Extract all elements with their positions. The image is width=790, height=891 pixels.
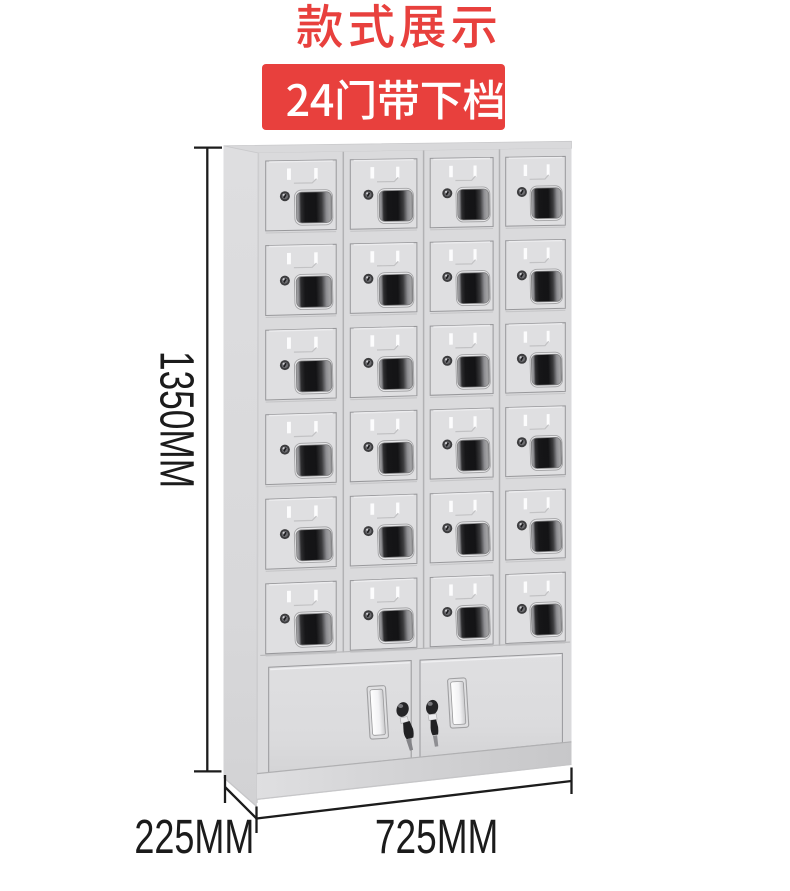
svg-text:725MM: 725MM — [375, 810, 499, 864]
svg-text:1350MM: 1350MM — [150, 351, 204, 488]
svg-text:225MM: 225MM — [134, 810, 254, 863]
